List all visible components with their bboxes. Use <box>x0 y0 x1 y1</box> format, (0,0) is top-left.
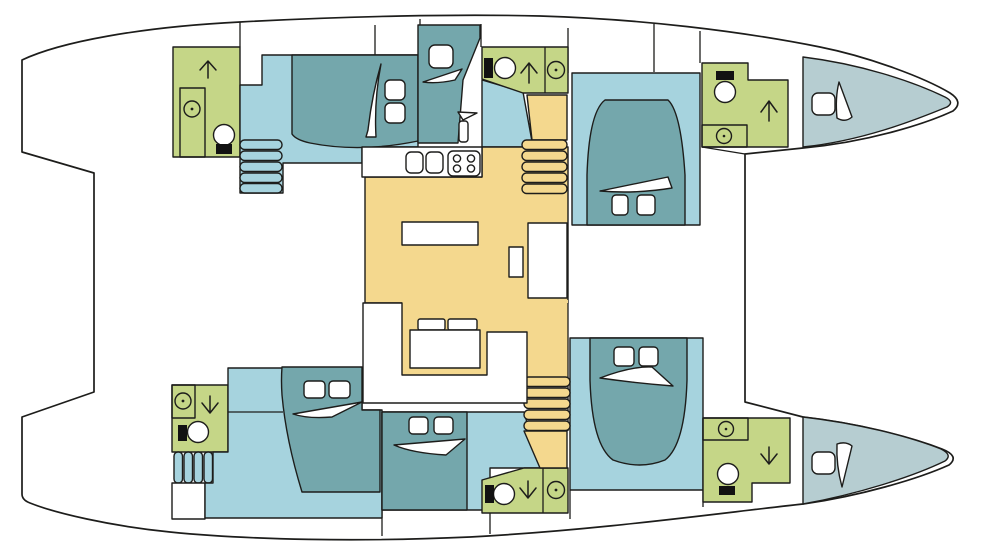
toilet-seat <box>719 486 735 495</box>
toilet-icon <box>188 422 209 443</box>
salon-table <box>402 222 478 245</box>
shower-drain-dot <box>555 69 558 72</box>
sink-basin <box>406 152 423 173</box>
pillow <box>637 195 655 215</box>
nav-desk <box>528 223 567 298</box>
galley <box>362 147 482 177</box>
salon-floor-col <box>522 300 568 378</box>
pillow <box>614 347 634 366</box>
sofa-cushion <box>418 319 445 330</box>
pillow <box>434 417 453 434</box>
toilet-icon <box>495 58 516 79</box>
toilet-icon <box>715 82 736 103</box>
toilet-seat <box>484 58 493 78</box>
stbd-aft-cabin <box>205 367 382 518</box>
port-companionway-stairs-icon <box>522 95 567 194</box>
shower-drain-dot <box>555 489 558 492</box>
pillow <box>329 381 350 398</box>
toilet-seat <box>716 71 734 80</box>
pillow <box>812 452 835 474</box>
sofa-cushion <box>448 319 477 330</box>
shower-drain-dot <box>182 400 185 403</box>
pillow <box>639 347 658 366</box>
sink-basin <box>426 152 443 173</box>
toilet-seat <box>485 485 494 503</box>
shower-drain-dot <box>191 108 194 111</box>
catamaran-floor-plan <box>0 0 1003 551</box>
double-bed <box>292 55 418 148</box>
nav-seat <box>509 247 523 277</box>
toilet-seat <box>216 144 232 154</box>
transom-locker <box>172 483 205 519</box>
shower-drain-dot <box>725 428 728 431</box>
stairs-icon <box>240 140 282 193</box>
toilet-icon <box>494 484 515 505</box>
coffee-table <box>410 330 480 368</box>
port-aft-head <box>173 47 240 157</box>
pillow <box>612 195 628 215</box>
shower-drain-dot <box>723 135 726 138</box>
toilet-icon <box>718 464 739 485</box>
toilet-icon <box>214 125 235 146</box>
pillow <box>385 80 405 100</box>
pillow <box>304 381 325 398</box>
toilet-seat <box>178 425 187 441</box>
stbd-bow-berth <box>803 417 948 504</box>
salon-floor-fill2 <box>487 300 528 333</box>
stbd-fwd-cabin <box>570 338 703 490</box>
pillow <box>409 417 428 434</box>
pillow <box>812 93 835 115</box>
step-shelf <box>459 121 468 142</box>
stbd-aft-head <box>172 385 228 452</box>
double-bed <box>587 100 685 225</box>
pillow <box>429 45 453 68</box>
port-fwd-cabin <box>572 73 700 225</box>
stove-icon <box>448 151 480 176</box>
pillow <box>385 103 405 123</box>
